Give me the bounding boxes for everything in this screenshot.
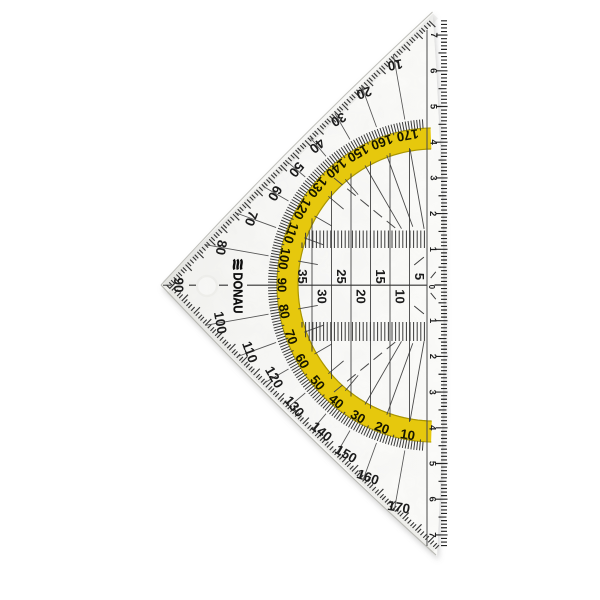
svg-text:3: 3: [427, 389, 438, 394]
svg-text:15: 15: [373, 269, 388, 283]
svg-text:2: 2: [427, 354, 438, 359]
svg-text:1: 1: [427, 318, 438, 324]
svg-text:10: 10: [392, 289, 407, 303]
svg-text:30: 30: [314, 289, 329, 303]
svg-text:35: 35: [295, 269, 310, 283]
svg-text:7: 7: [426, 532, 437, 537]
svg-text:5: 5: [426, 461, 437, 467]
svg-text:DONAU: DONAU: [231, 273, 246, 314]
svg-text:25: 25: [334, 269, 349, 283]
svg-text:5: 5: [428, 104, 439, 110]
svg-text:7: 7: [428, 32, 439, 37]
svg-text:80: 80: [276, 303, 293, 320]
svg-text:6: 6: [428, 68, 439, 73]
svg-text:4: 4: [427, 140, 438, 146]
svg-text:10: 10: [386, 56, 403, 73]
svg-text:5: 5: [412, 273, 427, 280]
svg-text:10: 10: [399, 426, 416, 443]
svg-text:3: 3: [427, 175, 438, 180]
svg-text:90: 90: [171, 277, 186, 292]
svg-text:1: 1: [427, 247, 438, 253]
svg-text:6: 6: [426, 497, 437, 502]
svg-text:0: 0: [427, 285, 436, 290]
svg-text:2: 2: [427, 211, 438, 216]
svg-text:4: 4: [427, 425, 438, 431]
svg-text:80: 80: [213, 239, 230, 256]
svg-text:20: 20: [353, 289, 368, 303]
